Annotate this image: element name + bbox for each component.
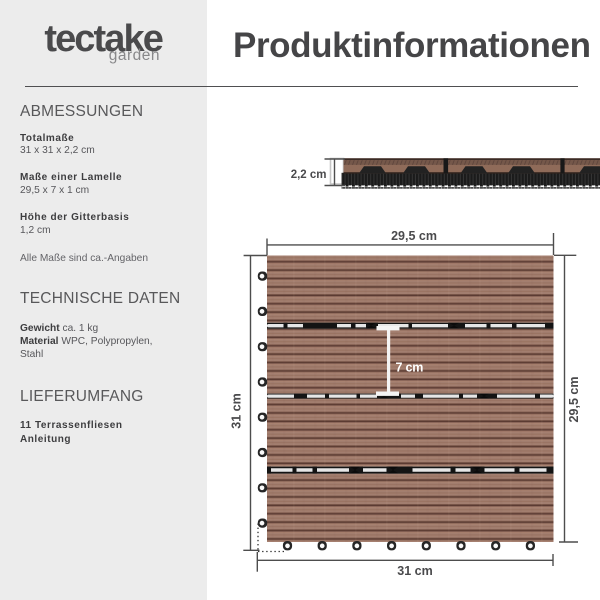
svg-text:2,2 cm: 2,2 cm [291, 169, 327, 181]
svg-text:7 cm: 7 cm [396, 360, 424, 374]
svg-text:31 cm: 31 cm [397, 564, 432, 578]
svg-text:31 cm: 31 cm [230, 393, 244, 428]
svg-text:29,5 cm: 29,5 cm [391, 229, 437, 243]
svg-text:29,5 cm: 29,5 cm [567, 377, 581, 423]
